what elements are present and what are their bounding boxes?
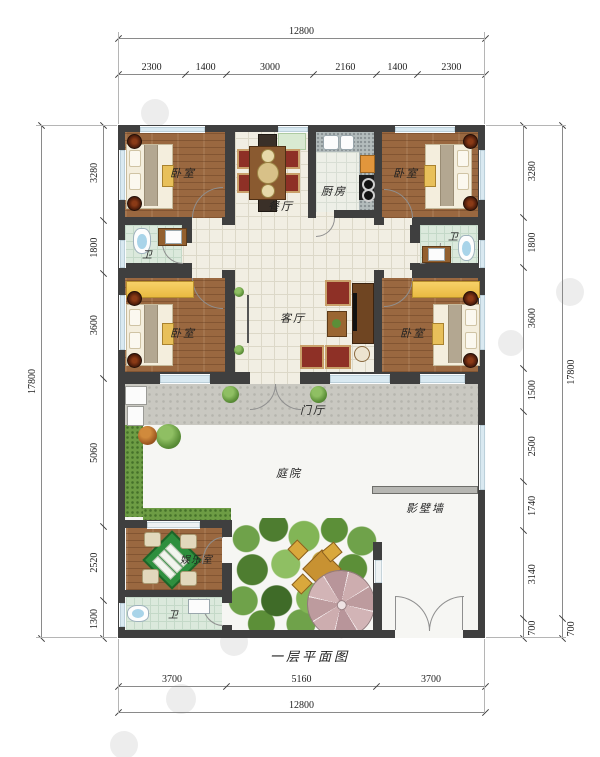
wall-ext-bottom bbox=[463, 630, 485, 638]
wall-entrance-left bbox=[373, 542, 382, 638]
room-label: 娱乐室 bbox=[180, 551, 213, 566]
floor-plan-canvas: 12800 2300 1400 3000 2160 1400 2300 3700… bbox=[0, 0, 600, 757]
seat bbox=[180, 571, 197, 586]
window bbox=[119, 240, 126, 268]
dining-table bbox=[249, 146, 286, 200]
extension-line bbox=[118, 32, 119, 124]
dim-value: 12800 bbox=[98, 26, 505, 37]
blanket bbox=[144, 305, 158, 363]
bath-sink bbox=[188, 599, 210, 614]
dim-value: 1800 bbox=[89, 221, 100, 274]
pillow bbox=[457, 173, 469, 190]
dining-plate bbox=[261, 184, 275, 198]
lamp bbox=[463, 134, 478, 149]
dim-right-outer: 17800 700 bbox=[558, 125, 574, 638]
room-label: 厨房 bbox=[321, 183, 347, 199]
dim-value: 1300 bbox=[89, 600, 100, 638]
window bbox=[330, 374, 390, 384]
dim-value: 1740 bbox=[527, 481, 538, 530]
wall-kitchen-right bbox=[374, 125, 382, 225]
dim-value: 3280 bbox=[89, 125, 100, 221]
dining-chair bbox=[284, 149, 300, 169]
stove bbox=[359, 175, 374, 200]
pillow bbox=[129, 332, 141, 349]
dim-value: 17800 bbox=[27, 125, 38, 638]
wall-kitchen-left bbox=[308, 125, 316, 218]
dim-top-segments: 2300 1400 3000 2160 1400 2300 bbox=[118, 64, 485, 78]
armchair bbox=[325, 280, 351, 306]
shrub-orange bbox=[138, 426, 157, 445]
window bbox=[119, 295, 126, 350]
screen-wall bbox=[372, 486, 478, 494]
lamp bbox=[127, 291, 142, 306]
dim-value: 700 bbox=[566, 619, 577, 638]
extension-line bbox=[484, 32, 485, 124]
kitchen-sink bbox=[340, 135, 354, 150]
lamp bbox=[463, 353, 478, 368]
armchair bbox=[325, 345, 351, 369]
door-leaf-gate-right bbox=[462, 596, 463, 630]
window bbox=[420, 374, 465, 384]
wall-ext-bottom bbox=[118, 630, 395, 638]
window bbox=[479, 240, 486, 268]
wall-bedroom-mr-left bbox=[374, 270, 382, 372]
blanket bbox=[440, 145, 454, 206]
plant bbox=[234, 287, 244, 297]
lamp bbox=[463, 196, 478, 211]
dim-value: 3700 bbox=[357, 674, 505, 685]
dim-value: 3280 bbox=[527, 125, 538, 217]
dim-left-segments: 3280 1800 3600 5060 2520 1300 bbox=[92, 125, 108, 638]
pillow bbox=[457, 150, 469, 167]
room-label: 门厅 bbox=[300, 402, 326, 418]
wall-bath-left-bottom bbox=[118, 263, 192, 270]
window bbox=[374, 560, 383, 583]
lamp bbox=[127, 196, 142, 211]
seat bbox=[142, 569, 159, 584]
wall-bedroom-ml-top bbox=[118, 270, 192, 278]
room-label: 卫 bbox=[168, 606, 179, 621]
bath-sink bbox=[165, 230, 182, 244]
pillow bbox=[129, 150, 141, 167]
room-label: 庭院 bbox=[276, 465, 302, 481]
bath-sink bbox=[428, 248, 445, 261]
burner bbox=[362, 189, 375, 202]
watermark-dot bbox=[110, 731, 138, 757]
plan-title: 一层平面图 bbox=[240, 646, 380, 665]
window bbox=[119, 150, 126, 200]
extension-line bbox=[118, 639, 119, 713]
wall-bath-right-bottom bbox=[410, 263, 485, 270]
dim-value: 3140 bbox=[527, 530, 538, 618]
window bbox=[278, 126, 308, 133]
dim-value: 700 bbox=[527, 618, 538, 638]
kitchen-sink bbox=[323, 135, 339, 150]
bedside-table bbox=[432, 323, 444, 345]
coffee-table bbox=[327, 311, 347, 337]
toilet bbox=[127, 605, 149, 622]
room-label: 客厅 bbox=[280, 310, 306, 326]
dim-value: 2500 bbox=[527, 411, 538, 481]
building-plan: 卧室 卧室 卧室 卧室 bbox=[118, 125, 485, 638]
room-label: 卫 bbox=[448, 228, 459, 243]
foyer-shrub bbox=[222, 386, 239, 403]
blanket bbox=[448, 305, 462, 363]
window bbox=[479, 150, 486, 200]
dining-plate bbox=[261, 149, 275, 163]
room-label: 影壁墙 bbox=[406, 500, 445, 516]
dim-right-segments: 3280 1800 3600 1500 2500 1740 3140 700 bbox=[519, 125, 535, 638]
dim-value: 2520 bbox=[89, 526, 100, 600]
dim-value: 3600 bbox=[89, 273, 100, 378]
wall-bedroom-tr-bottom bbox=[412, 217, 485, 225]
wall-entertainment-right bbox=[222, 625, 232, 638]
shrub bbox=[156, 424, 181, 449]
window bbox=[140, 126, 205, 133]
lamp bbox=[463, 291, 478, 306]
dim-bottom-segments: 3700 5160 3700 bbox=[118, 676, 485, 690]
room-label: 卧室 bbox=[170, 325, 196, 341]
pillow bbox=[129, 173, 141, 190]
extension-line bbox=[484, 639, 485, 713]
pillow bbox=[465, 309, 477, 326]
pillow bbox=[129, 309, 141, 326]
wall-entertainment-right bbox=[222, 563, 232, 603]
dim-bottom-overall: 12800 bbox=[118, 702, 485, 716]
dim-left-overall: 17800 bbox=[30, 125, 46, 638]
extension-line bbox=[36, 637, 117, 638]
cutting-board bbox=[360, 155, 375, 173]
window bbox=[479, 425, 486, 490]
wall-bedroom-tr-bottom bbox=[374, 217, 384, 225]
room-label: 卫 bbox=[142, 246, 153, 261]
dim-value: 1500 bbox=[527, 369, 538, 411]
foyer-shrub bbox=[310, 386, 327, 403]
table-plant bbox=[332, 319, 341, 328]
washing-machine bbox=[125, 386, 147, 405]
toilet bbox=[458, 235, 475, 261]
side-table bbox=[354, 346, 370, 362]
window bbox=[479, 295, 486, 350]
room-label: 卧室 bbox=[170, 165, 196, 181]
blanket bbox=[144, 145, 158, 206]
wall-bath-right-partition bbox=[410, 225, 420, 243]
seat bbox=[144, 532, 161, 547]
dim-value: 12800 bbox=[98, 700, 505, 711]
extension-line bbox=[486, 637, 566, 638]
wall-bedroom-mr-top bbox=[412, 270, 485, 278]
cabinet bbox=[127, 406, 144, 426]
wall-entertainment-right bbox=[222, 520, 232, 537]
pillow bbox=[465, 332, 477, 349]
wall-bedroom-tl-right bbox=[225, 125, 235, 225]
dim-top-overall: 12800 bbox=[118, 28, 485, 42]
wall-bedroom-tl-bottom bbox=[118, 217, 192, 225]
watermark-dot bbox=[141, 99, 169, 127]
door-leaf-gate-left bbox=[395, 596, 396, 630]
lamp bbox=[127, 353, 142, 368]
screen-divider bbox=[247, 295, 249, 343]
wall-bedroom-ml-right bbox=[225, 270, 235, 372]
window bbox=[147, 521, 200, 529]
dim-value: 3600 bbox=[527, 268, 538, 369]
seat bbox=[180, 534, 197, 549]
room-label: 餐厅 bbox=[268, 198, 294, 214]
extension-line bbox=[36, 125, 117, 126]
bedside-table bbox=[424, 165, 436, 187]
dim-value: 5060 bbox=[89, 379, 100, 527]
window bbox=[119, 603, 126, 627]
wall-entertainment-divider bbox=[118, 590, 222, 597]
dining-plate bbox=[257, 162, 279, 184]
dining-chair bbox=[284, 173, 300, 193]
window bbox=[395, 126, 455, 133]
armchair bbox=[300, 345, 324, 369]
room-label: 卧室 bbox=[393, 165, 419, 181]
extension-line bbox=[486, 125, 566, 126]
window bbox=[160, 374, 210, 384]
room-label: 卧室 bbox=[400, 325, 426, 341]
wall-bedroom-tl-bottom bbox=[222, 217, 235, 225]
lamp bbox=[127, 134, 142, 149]
dim-value: 17800 bbox=[566, 125, 577, 619]
plant bbox=[234, 345, 244, 355]
tv bbox=[353, 293, 357, 331]
dim-value: 1800 bbox=[527, 217, 538, 268]
